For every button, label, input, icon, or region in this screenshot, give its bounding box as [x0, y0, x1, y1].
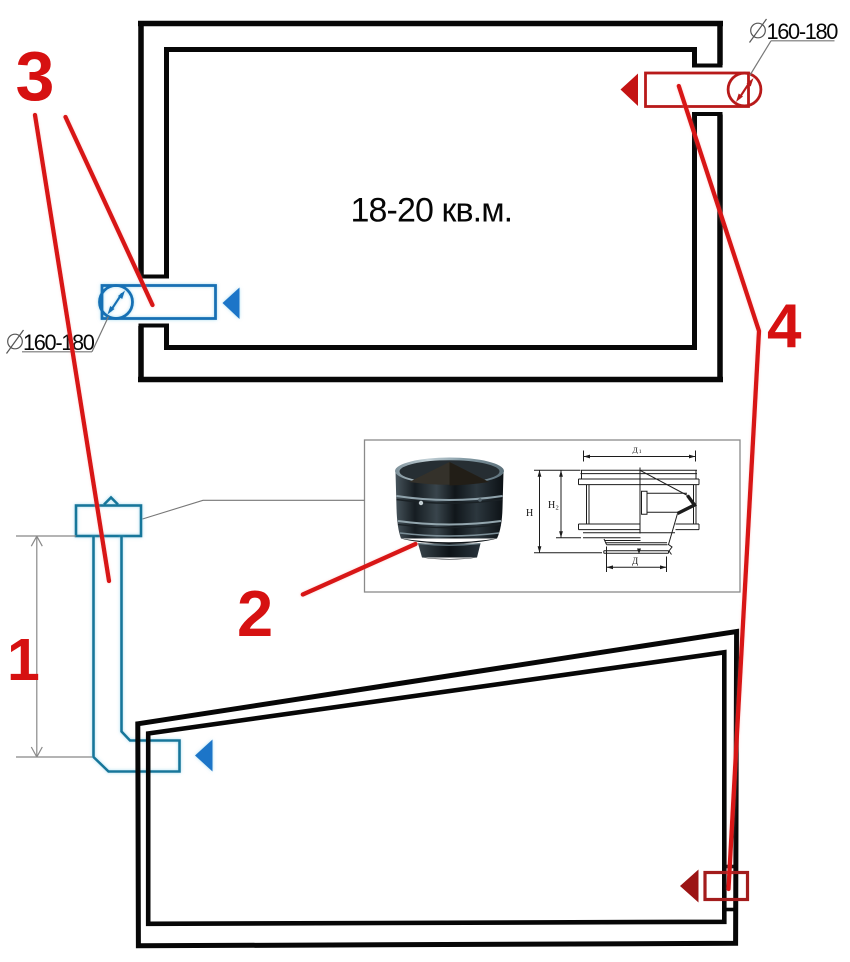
- svg-text:H: H: [548, 500, 555, 511]
- svg-text:2: 2: [556, 505, 559, 512]
- svg-text:3: 3: [16, 37, 55, 115]
- svg-text:Д: Д: [633, 446, 639, 455]
- svg-text:1: 1: [7, 627, 40, 693]
- svg-text:18-20 кв.м.: 18-20 кв.м.: [351, 192, 513, 230]
- svg-text:4: 4: [767, 292, 802, 361]
- svg-text:Д: Д: [632, 556, 638, 566]
- svg-text:H: H: [526, 508, 533, 519]
- svg-text:2: 2: [237, 577, 273, 650]
- svg-text:1: 1: [639, 449, 642, 455]
- svg-text:160-180: 160-180: [767, 19, 839, 44]
